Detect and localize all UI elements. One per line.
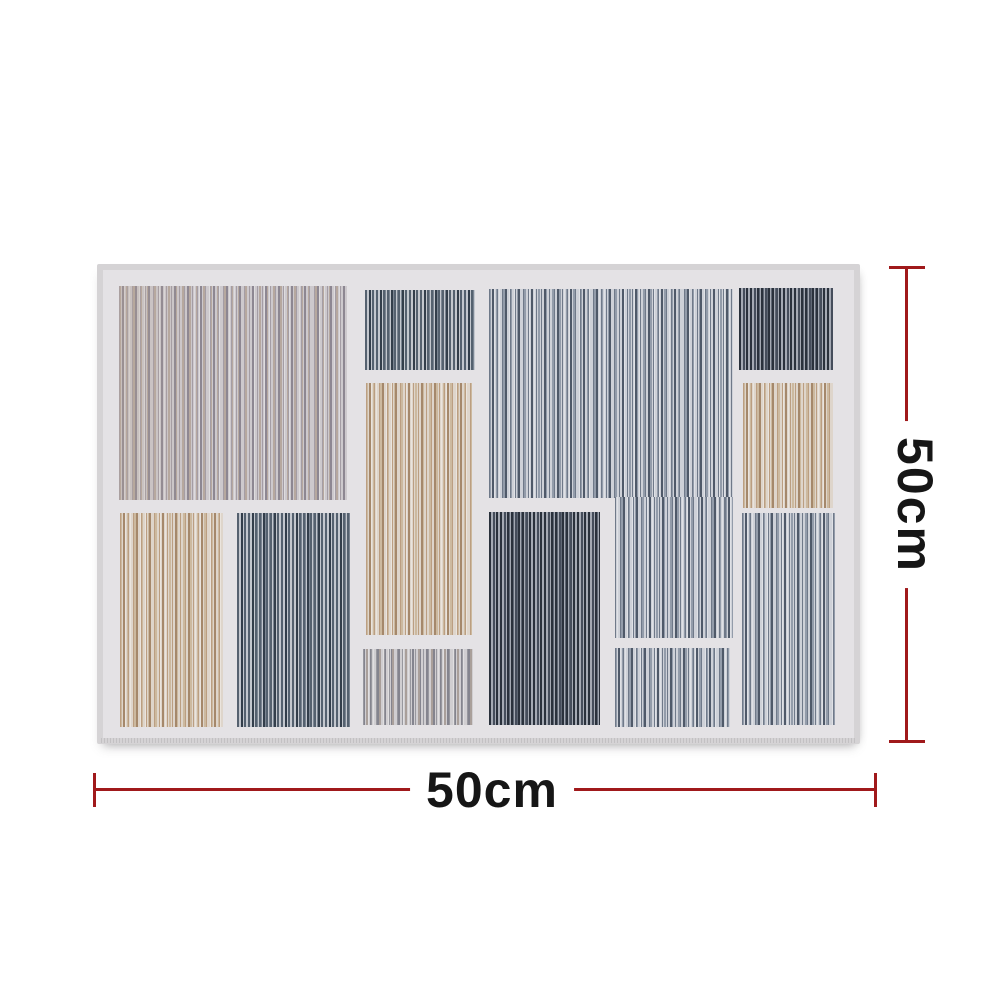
rug-panel-center-bottom: [615, 648, 730, 727]
rug-image: [97, 264, 860, 744]
rug-panel-mid-bottom: [363, 649, 473, 725]
rug-panel-mid-tan: [366, 383, 472, 635]
height-dimension-endcap-bottom: [889, 740, 925, 743]
height-dimension-label: 50cm: [884, 421, 946, 589]
rug-panel-mid-top: [365, 290, 475, 370]
width-dimension: 50cm: [93, 773, 877, 807]
rug-panel-right-top-dark: [739, 288, 833, 370]
rug-panel-right-tan: [743, 383, 833, 508]
rug-panel-bottom-left-slate: [237, 513, 350, 727]
rug-panel-center-dark: [489, 512, 600, 725]
height-dimension: 50cm: [889, 266, 925, 743]
rug-panel-bottom-left-tan: [120, 513, 223, 727]
width-dimension-endcap-right: [874, 773, 877, 807]
rug-panel-top-left: [119, 286, 347, 500]
product-image: 50cm 50cm: [0, 0, 1000, 1000]
rug-panel-center-main: [489, 289, 733, 498]
rug-panel-center-main-lower: [615, 497, 733, 638]
rug-pattern: [103, 270, 854, 738]
width-dimension-label: 50cm: [410, 761, 574, 819]
rug-fringe: [101, 738, 856, 743]
rug-panel-right-slate: [742, 513, 835, 725]
